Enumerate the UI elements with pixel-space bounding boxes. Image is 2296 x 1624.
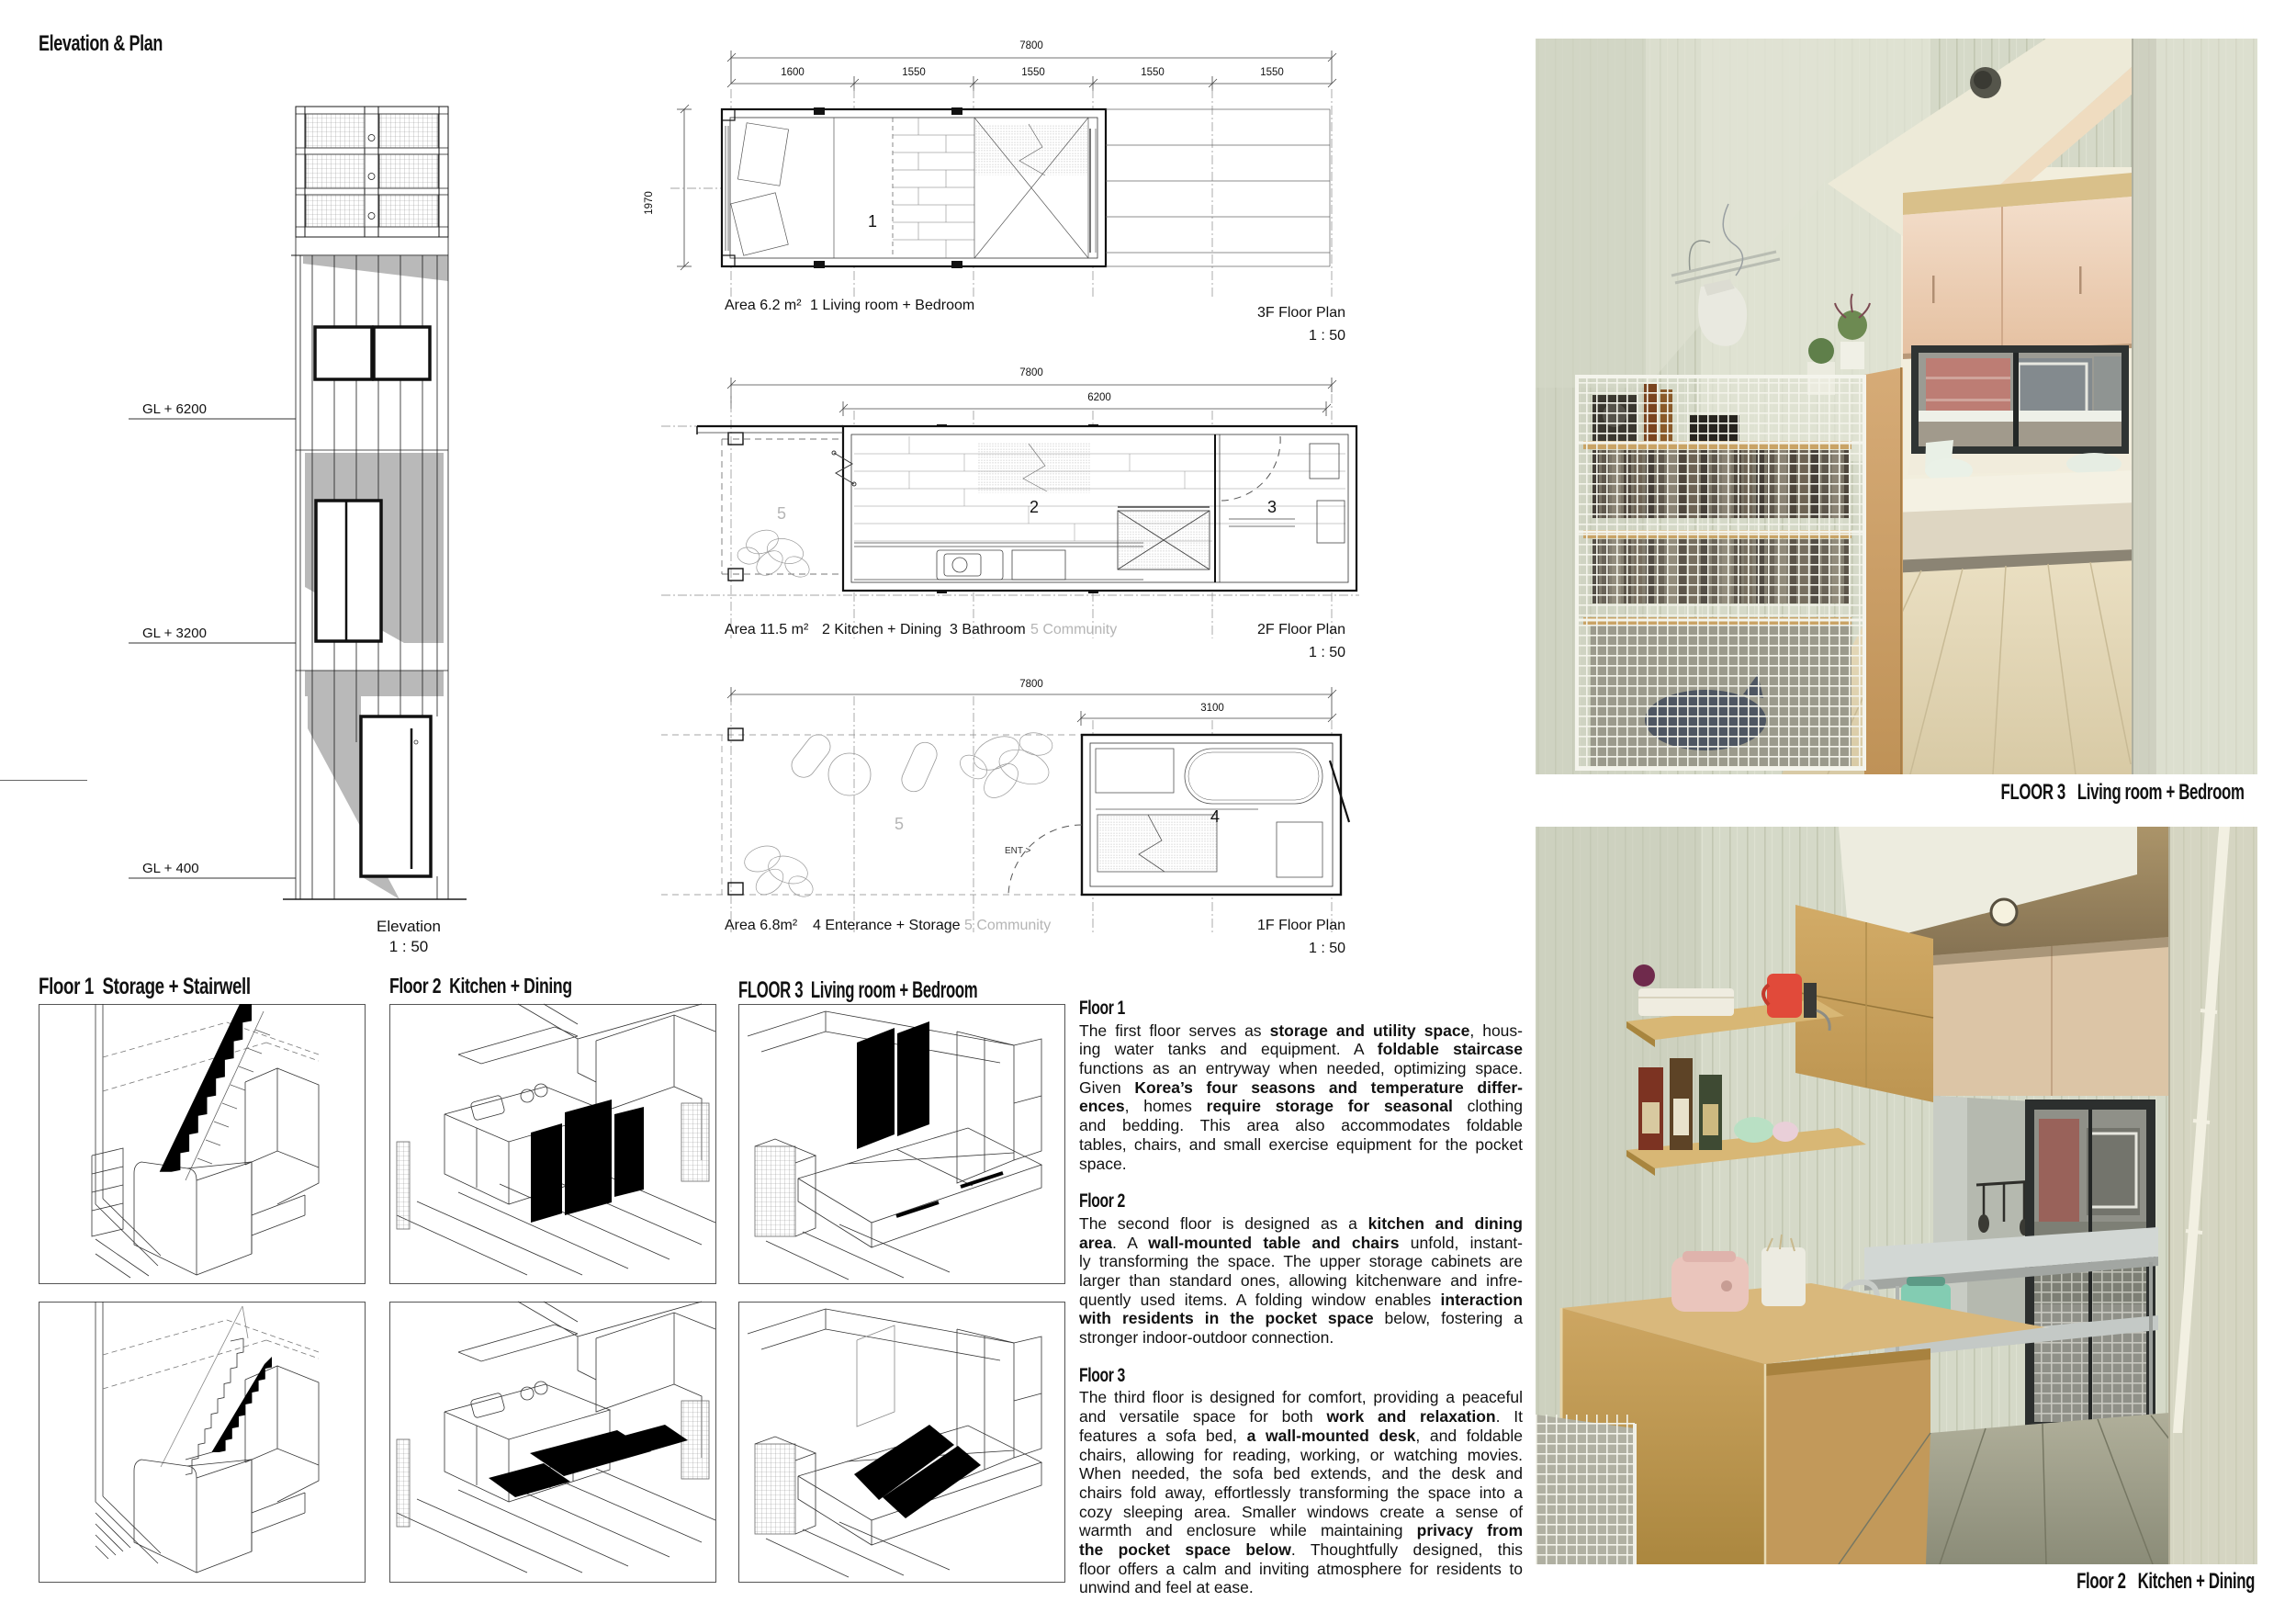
svg-text:GL + 400: GL + 400	[142, 861, 199, 876]
svg-text:1550: 1550	[902, 67, 926, 78]
svg-text:1: 1	[868, 212, 877, 231]
svg-text:3: 3	[1267, 498, 1277, 516]
svg-text:ENT >: ENT >	[1005, 846, 1031, 856]
svg-text:1 : 50: 1 : 50	[389, 938, 429, 955]
svg-text:1970: 1970	[644, 191, 655, 215]
svg-text:1550: 1550	[1021, 67, 1045, 78]
svg-text:2: 2	[1030, 498, 1039, 516]
svg-text:Area 6.2 m²: Area 6.2 m²	[725, 298, 802, 313]
svg-text:Area 11.5 m²: Area 11.5 m²	[725, 622, 809, 637]
svg-text:7800: 7800	[1019, 679, 1043, 690]
svg-text:Area 6.8m²: Area 6.8m²	[725, 918, 798, 933]
svg-text:1 Living room + Bedroom: 1 Living room + Bedroom	[810, 298, 974, 313]
svg-text:6200: 6200	[1087, 392, 1111, 403]
svg-text:4 Enterance + Storage: 4 Enterance + Storage	[813, 918, 961, 933]
svg-text:1F Floor Plan: 1F Floor Plan	[1257, 918, 1345, 933]
svg-text:5 Community: 5 Community	[1030, 622, 1117, 637]
svg-text:2F Floor Plan: 2F Floor Plan	[1257, 622, 1345, 637]
svg-text:7800: 7800	[1019, 367, 1043, 378]
svg-text:2 Kitchen + Dining: 2 Kitchen + Dining	[822, 622, 941, 637]
svg-text:3F Floor Plan: 3F Floor Plan	[1257, 305, 1345, 321]
svg-text:1550: 1550	[1260, 67, 1284, 78]
svg-text:3 Bathroom: 3 Bathroom	[950, 622, 1026, 637]
svg-text:GL + 6200: GL + 6200	[142, 401, 207, 417]
svg-text:1 : 50: 1 : 50	[1309, 328, 1345, 344]
svg-text:1600: 1600	[781, 67, 805, 78]
svg-text:1550: 1550	[1141, 67, 1165, 78]
svg-text:GL + 3200: GL + 3200	[142, 626, 207, 641]
svg-text:5: 5	[777, 504, 786, 523]
svg-text:5: 5	[895, 815, 904, 833]
svg-text:5 Community: 5 Community	[964, 918, 1051, 933]
svg-text:3100: 3100	[1200, 703, 1224, 714]
svg-text:7800: 7800	[1019, 40, 1043, 51]
svg-text:4: 4	[1210, 807, 1220, 826]
svg-text:1 : 50: 1 : 50	[1309, 941, 1345, 956]
svg-text:1 : 50: 1 : 50	[1309, 645, 1345, 660]
svg-text:Elevation: Elevation	[377, 918, 441, 935]
